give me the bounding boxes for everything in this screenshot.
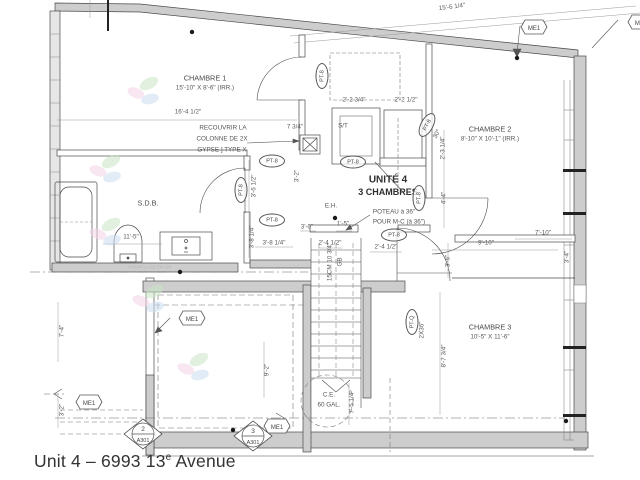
dimension-label: 7'-10"	[535, 230, 551, 237]
dimension-label: 3'-0"	[301, 224, 314, 231]
note-poteau-2: POUR M-C (à 36")	[373, 219, 425, 226]
tag-pt8-text: PT-8	[238, 184, 244, 196]
caption-text-suffix: Avenue	[171, 451, 235, 471]
tag-pt8: PT-8	[340, 156, 366, 169]
room-dims-chambre2: 8'-10" X 10'-1" (IRR.)	[461, 136, 519, 143]
dimension-label: 4'-4"	[441, 192, 448, 205]
note-poteau-1: POTEAU à 36"	[373, 209, 415, 216]
section-number: 3	[251, 428, 255, 435]
tag-pt8: PT-8	[381, 229, 407, 242]
tag-pt8-text: PT-8	[266, 217, 278, 223]
room-label-sdb: S.D.B.	[137, 199, 158, 208]
drawing-caption: Unit 4 – 6993 13e Avenue	[34, 451, 236, 472]
dimension-label: 2'-2 1/2"	[394, 97, 417, 104]
tag-ptq: PT-Q	[406, 309, 419, 335]
section-number: 2	[141, 426, 145, 433]
tag-me1-text: ME1	[635, 21, 640, 27]
room-label-chambre1: CHAMBRE 1	[184, 74, 227, 83]
reference-dots	[178, 30, 568, 432]
dimension-label: 3'-2"	[59, 404, 66, 417]
note-recouvrir-2: COLONNE DE 2X	[196, 136, 247, 143]
caption-text: Unit 4 – 6993 13	[34, 451, 166, 471]
tag-pt8-text: PT-8	[388, 232, 400, 238]
tag-me1-text: ME1	[83, 401, 96, 407]
dimension-label: 7'-4"	[59, 325, 66, 338]
unit-title: UNITÉ 4	[369, 175, 407, 186]
floor-plan-page: CHAMBRE 1 15'-10" X 8'-6" (IRR.) CHAMBRE…	[0, 0, 640, 480]
top-dimension-lines	[90, 0, 640, 43]
dimension-label: 3'-6 1/2"	[251, 174, 258, 197]
tag-pt8-text: PT-8	[319, 70, 325, 82]
dimension-label: 3'-2"	[294, 170, 301, 183]
dimension-label: 2'-4 1/2"	[374, 244, 397, 251]
room-label-chambre3: CHAMBRE 3	[469, 323, 512, 332]
dimension-label: 3'-6"	[445, 255, 452, 268]
tag-pt8-text: PT-8	[266, 158, 278, 164]
toilet	[114, 225, 142, 262]
stair-note: 15CM 10 3/4"	[327, 243, 334, 281]
dimension-label: 1'-5"	[337, 221, 350, 228]
stair-note-2: GB	[337, 257, 344, 266]
tag-pt8: PT-8	[316, 63, 329, 89]
section-sheet: A301	[137, 438, 150, 444]
tag-pt8: PT-8	[413, 185, 426, 211]
note-recouvrir-1: RECOUVRIR LA	[199, 125, 246, 132]
dimension-label: 2'-4 1/2"	[318, 240, 341, 247]
tag-me1-text: ME1	[528, 26, 541, 32]
vanity-sink	[160, 232, 212, 260]
unit-subtitle: 3 CHAMBRES	[358, 187, 418, 197]
tag-pt8-text: PT-8	[416, 192, 422, 204]
dimension-label: 3'-8 1/4"	[262, 240, 285, 247]
dimension-label: 9'-2"	[264, 364, 271, 377]
dimension-label: 3'-4"	[564, 251, 571, 264]
dimension-label: 7'-5 1/4"	[349, 390, 356, 413]
dimension-label: 2'-2 3/4"	[342, 97, 365, 104]
room-dims-chambre3: 10'-5" X 11'-6"	[470, 334, 509, 341]
tag-pt8-text: PT-8	[422, 118, 433, 131]
note-recouvrir-3: GYPSE ] TYPE X	[197, 147, 246, 154]
dimension-label: 11'-5"	[123, 234, 139, 241]
bathtub	[55, 182, 97, 262]
column-box	[300, 135, 320, 154]
room-dims-chambre1: 15'-10" X 8'-6" (IRR.)	[176, 85, 234, 92]
tag-pt8: PT-8	[259, 214, 285, 227]
label-soufflage: SOUFFLAGE EN GB	[129, 265, 172, 270]
dimension-label: 7 3/4"	[287, 124, 303, 131]
dimension-label: 16'-4 1/2"	[175, 109, 202, 116]
dimension-label: 2'-3 1/4"	[440, 136, 447, 159]
label-eh: E.H.	[325, 203, 337, 210]
tag-pt8: PT-8	[235, 177, 248, 203]
note-chauffe-eau-1: C.E.	[323, 392, 335, 399]
room-label-chambre2: CHAMBRE 2	[469, 125, 512, 134]
tag-ptq-text: PT-Q	[409, 316, 415, 329]
dimension-label: 9'-10"	[478, 240, 494, 247]
tag-pt8-text: PT-8	[347, 159, 359, 165]
tag-pt8: PT-8	[259, 155, 285, 168]
label-st: S/T	[338, 123, 348, 130]
note-chauffe-eau-2: 60 GAL.	[317, 402, 340, 409]
dimension-label: 8'-7 3/4"	[441, 344, 448, 367]
tag-ptq-size: 2X36"	[419, 322, 426, 339]
section-sheet: A301	[247, 440, 260, 446]
tag-me1-text: ME1	[186, 317, 199, 323]
reference-lines	[30, 272, 565, 418]
dimension-label: 3'-8 1/4"	[249, 225, 256, 248]
